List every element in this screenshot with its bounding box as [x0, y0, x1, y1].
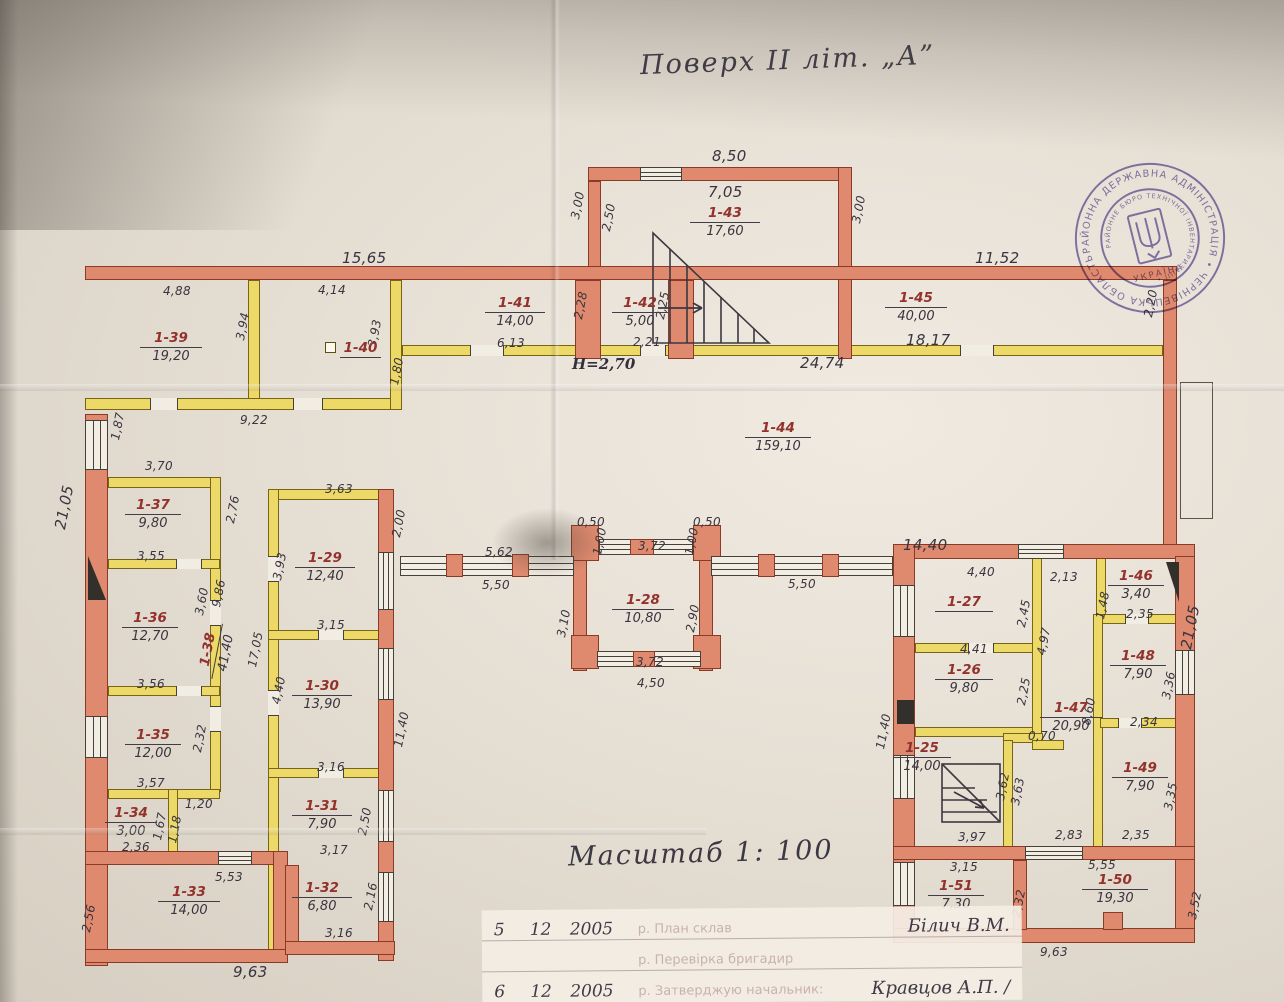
room-label-1-32: 1-326,80: [292, 880, 352, 914]
room-number: 1-46: [1108, 568, 1164, 586]
room-area: 7,90: [292, 816, 352, 832]
window: [893, 862, 915, 906]
exterior-wall: [838, 167, 852, 359]
room-label-1-37: 1-379,80: [125, 497, 181, 531]
signature-table: 5 12 2005 р. План склав Білич В.М. р. Пе…: [482, 906, 1023, 1002]
dimension-label: 2,13: [1050, 570, 1078, 584]
dimension-label: 3,70: [145, 459, 173, 473]
window: [218, 851, 252, 865]
door-opening: [176, 686, 202, 696]
corridor-glazing: [400, 556, 574, 576]
room-label-1-43: 1-4317,60: [690, 205, 760, 239]
room-number: 1-37: [125, 497, 181, 515]
height-note: H=2,70: [572, 355, 635, 373]
dimension-label: 3,16: [325, 926, 353, 940]
room-label-1-26: 1-269,80: [935, 662, 993, 696]
room-label-1-25: 1-2514,00: [893, 740, 951, 774]
dimension-label: 3,15: [317, 618, 345, 632]
window: [85, 716, 108, 758]
room-label-1-48: 1-487,90: [1110, 648, 1166, 682]
dimension-label: 3,63: [325, 482, 353, 496]
room-area: 5,00: [612, 313, 668, 329]
balcony-outline: [1180, 382, 1213, 519]
dimension-label: 3,72: [636, 655, 664, 669]
room-number: 1-36: [122, 610, 178, 628]
door-opening: [176, 559, 202, 569]
room-number: 1-27: [935, 594, 993, 612]
dimension-label: 18,17: [906, 331, 950, 349]
room-number: 1-47: [1040, 700, 1102, 718]
photo-shadow: [0, 0, 760, 230]
door-opening: [293, 398, 323, 410]
room-number: 1-33: [158, 884, 220, 902]
room-number: 1-48: [1110, 648, 1166, 666]
pillar: [446, 554, 463, 577]
room-area: 14,00: [485, 313, 545, 329]
room-number: 1-40: [340, 340, 382, 358]
dimension-label: 5,55: [1088, 858, 1116, 872]
pillar: [512, 554, 529, 577]
dimension-label: 14,40: [903, 536, 947, 554]
room-area: 13,90: [292, 696, 352, 712]
window: [378, 872, 394, 922]
exterior-wall: [85, 949, 288, 963]
dimension-label: 1,20: [185, 797, 213, 811]
exterior-wall: [285, 941, 395, 955]
dimension-label: 4,50: [637, 676, 665, 690]
room-number: 1-39: [140, 330, 202, 348]
printed-caption: р. План склав: [638, 920, 898, 939]
door-opening: [150, 398, 178, 410]
photo-shadow: [0, 0, 18, 1002]
partition-wall: [85, 398, 402, 410]
room-number: 1-32: [292, 880, 352, 898]
room-label-1-34: 1-343,00: [105, 805, 157, 839]
room-area: 3,40: [1108, 586, 1164, 602]
window: [378, 790, 394, 842]
scale-label: Масштаб 1: 100: [568, 835, 834, 873]
dimension-label: 2,35: [1126, 607, 1154, 621]
room-area: 14,00: [893, 758, 951, 774]
dimension-label: 17,05: [245, 630, 266, 668]
window: [378, 648, 394, 700]
room-label-1-39: 1-3919,20: [140, 330, 202, 364]
room-number: 1-25: [893, 740, 951, 758]
dimension-label: 5,53: [215, 870, 243, 884]
row-number: 6: [494, 982, 520, 1002]
dimension-label: 11,40: [391, 710, 412, 748]
room-number: 1-26: [935, 662, 993, 680]
dimension-label: 5,62: [485, 545, 513, 559]
exterior-wall: [85, 851, 288, 865]
window: [893, 585, 915, 637]
page-title: Поверх ІІ літ. „А”: [640, 40, 936, 81]
door-opening: [210, 706, 221, 732]
dimension-label: 7,05: [708, 183, 743, 201]
dimension-label: 3,10: [554, 608, 573, 638]
room-number: 1-51: [928, 878, 984, 896]
room-label-1-27: 1-27: [935, 594, 993, 613]
window: [1018, 544, 1064, 559]
room-area: 9,80: [935, 680, 993, 696]
dimension-label: 2,50: [599, 202, 618, 232]
room-area: 20,90: [1040, 718, 1102, 734]
dimension-label: 2,50: [355, 806, 374, 836]
room-label-1-30: 1-3013,90: [292, 678, 352, 712]
dimension-label: 3,72: [638, 539, 666, 553]
row-day: 12: [530, 920, 560, 940]
door-leaf: [1166, 562, 1179, 602]
dimension-label: 5,50: [788, 577, 816, 591]
room-number: 1-44: [745, 420, 811, 438]
dimension-label: 4,14: [318, 283, 346, 297]
window: [640, 167, 682, 181]
pillar: [822, 554, 839, 577]
room-label-1-47: 1-4720,90: [1040, 700, 1102, 734]
dimension-label: 1,87: [108, 411, 127, 441]
room-number: 1-31: [292, 798, 352, 816]
printed-caption: р. Перевірка бригадир: [638, 950, 1000, 970]
room-area: 17,60: [690, 223, 760, 239]
signature: Кравцов А.П. /: [871, 977, 1010, 999]
exterior-wall: [571, 635, 599, 669]
room-area: 12,40: [295, 568, 355, 584]
room-area: 10,80: [612, 610, 674, 626]
fixture-icon: [325, 342, 336, 353]
dimension-label: 15,65: [342, 249, 386, 267]
dimension-label: 4,88: [163, 284, 191, 298]
room-area: 159,10: [745, 438, 811, 454]
room-area: [935, 612, 993, 613]
dimension-label: 2,34: [1130, 715, 1158, 729]
room-label-1-46: 1-463,40: [1108, 568, 1164, 602]
dimension-label: 2,25: [1014, 676, 1033, 706]
dimension-label: 3,17: [320, 843, 348, 857]
row-year: 2005: [570, 981, 628, 1002]
room-label-1-41: 1-4114,00: [485, 295, 545, 329]
exterior-wall: [85, 266, 1177, 280]
dimension-label: 2,35: [1122, 828, 1150, 842]
room-label-1-38: 1-3841,40: [195, 621, 239, 682]
room-label-1-29: 1-2912,40: [295, 550, 355, 584]
dimension-label: 11,40: [873, 712, 894, 750]
dimension-label: 4,41: [960, 642, 988, 656]
room-area: 12,00: [125, 745, 181, 761]
room-number: 1-42: [612, 295, 668, 313]
room-number: 1-45: [885, 290, 947, 308]
partition-wall: [248, 280, 260, 400]
trident-icon: [1128, 208, 1172, 263]
signature: Білич В.М.: [908, 915, 1010, 937]
paper-crease: [550, 0, 560, 560]
room-label-1-35: 1-3512,00: [125, 727, 181, 761]
room-label-1-31: 1-317,90: [292, 798, 352, 832]
room-area: 12,70: [122, 628, 178, 644]
dimension-label: 2,21: [633, 335, 661, 349]
room-area: 19,20: [140, 348, 202, 364]
partition-wall: [390, 280, 402, 410]
room-number: 1-29: [295, 550, 355, 568]
stairs-icon: [650, 230, 774, 348]
signature-row: 6 12 2005 р. Затверджую начальник: Кравц…: [482, 968, 1022, 1002]
partition-wall: [268, 489, 380, 500]
room-area: 3,00: [105, 823, 157, 839]
room-label-1-28: 1-2810,80: [612, 592, 674, 626]
room-label-1-42: 1-425,00: [612, 295, 668, 329]
exterior-wall: [1163, 280, 1177, 558]
stamp-ring-text: РАЙОННА ДЕРЖАВНА АДМІНІСТРАЦІЯ • ЧЕРНІВЕ…: [1055, 143, 1234, 325]
printed-caption: р. Затверджую начальник:: [638, 982, 861, 1001]
dimension-label: 3,60: [192, 586, 211, 616]
partition-wall: [108, 477, 221, 488]
dimension-label: 9,22: [240, 413, 268, 427]
dimension-label: 2,45: [1014, 598, 1033, 628]
exterior-wall: [1103, 912, 1123, 930]
dimension-label: 6,13: [497, 336, 525, 350]
room-number: 1-41: [485, 295, 545, 313]
room-label-1-36: 1-3612,70: [122, 610, 178, 644]
dimension-label: 24,74: [800, 354, 844, 372]
room-area: 14,00: [158, 902, 220, 918]
dimension-label: 2,76: [223, 494, 242, 524]
row-number: 5: [494, 920, 520, 940]
room-area: 19,30: [1082, 890, 1148, 906]
dimension-label: 5,50: [482, 578, 510, 592]
dimension-label: 2,32: [190, 723, 209, 753]
dimension-label: 2,36: [122, 840, 150, 854]
paper-crease: [0, 384, 1284, 391]
floor-plan: 8,50 7,05 3,00 2,50 3,00 15,65 4,88 4,14…: [0, 0, 1284, 1002]
room-area: 9,80: [125, 515, 181, 531]
dimension-label: 3,00: [568, 190, 587, 220]
dimension-label: 3,16: [317, 760, 345, 774]
room-number: 1-49: [1112, 760, 1168, 778]
room-number: 1-30: [292, 678, 352, 696]
dimension-label: 3,97: [958, 830, 986, 844]
dimension-label: 3,15: [950, 860, 978, 874]
dimension-label: 9,63: [1040, 945, 1068, 959]
room-label-1-33: 1-3314,00: [158, 884, 220, 918]
room-label-1-40: 1-40: [322, 338, 384, 358]
exterior-wall: [588, 167, 851, 181]
pillar: [758, 554, 775, 577]
room-area: 40,00: [885, 308, 947, 324]
dimension-label: 3,56: [137, 677, 165, 691]
official-stamp: РАЙОННА ДЕРЖАВНА АДМІНІСТРАЦІЯ • ЧЕРНІВЕ…: [1055, 143, 1244, 332]
room-label-1-44: 1-44159,10: [745, 420, 811, 454]
door-leaf: [897, 700, 914, 724]
corridor-glazing: [711, 556, 893, 576]
dimension-label: 9,63: [233, 963, 268, 981]
signature-row: 5 12 2005 р. План склав Білич В.М.: [482, 906, 1022, 942]
exterior-wall: [85, 414, 108, 966]
dimension-label: 21,05: [51, 484, 77, 531]
room-label-1-45: 1-4540,00: [885, 290, 947, 324]
dimension-label: 0,50: [693, 515, 721, 529]
window: [85, 420, 108, 470]
window: [1025, 846, 1083, 860]
room-label-1-49: 1-497,90: [1112, 760, 1168, 794]
room-number: 1-43: [690, 205, 760, 223]
dimension-label: 3,57: [137, 776, 165, 790]
dimension-label: 3,55: [137, 549, 165, 563]
dimension-label: 11,52: [975, 249, 1019, 267]
room-area: 7,90: [1110, 666, 1166, 682]
room-number: 1-50: [1082, 872, 1148, 890]
dimension-label: 4,40: [967, 565, 995, 579]
svg-text:РАЙОННА ДЕРЖАВНА АДМІНІСТРАЦІЯ: РАЙОННА ДЕРЖАВНА АДМІНІСТРАЦІЯ • ЧЕРНІВЕ…: [1055, 143, 1234, 325]
signature-row: р. Перевірка бригадир: [482, 937, 1022, 973]
room-number: 1-35: [125, 727, 181, 745]
row-day: 12: [530, 982, 560, 1002]
dimension-label: 2,83: [1055, 828, 1083, 842]
room-area: 6,80: [292, 898, 352, 914]
room-number: 1-34: [105, 805, 157, 823]
row-year: 2005: [570, 919, 628, 940]
window: [378, 552, 394, 610]
dimension-label: 8,50: [712, 147, 747, 165]
window: [960, 345, 994, 356]
room-label-1-50: 1-5019,30: [1082, 872, 1148, 906]
room-number: 1-28: [612, 592, 674, 610]
room-area: 7,90: [1112, 778, 1168, 794]
